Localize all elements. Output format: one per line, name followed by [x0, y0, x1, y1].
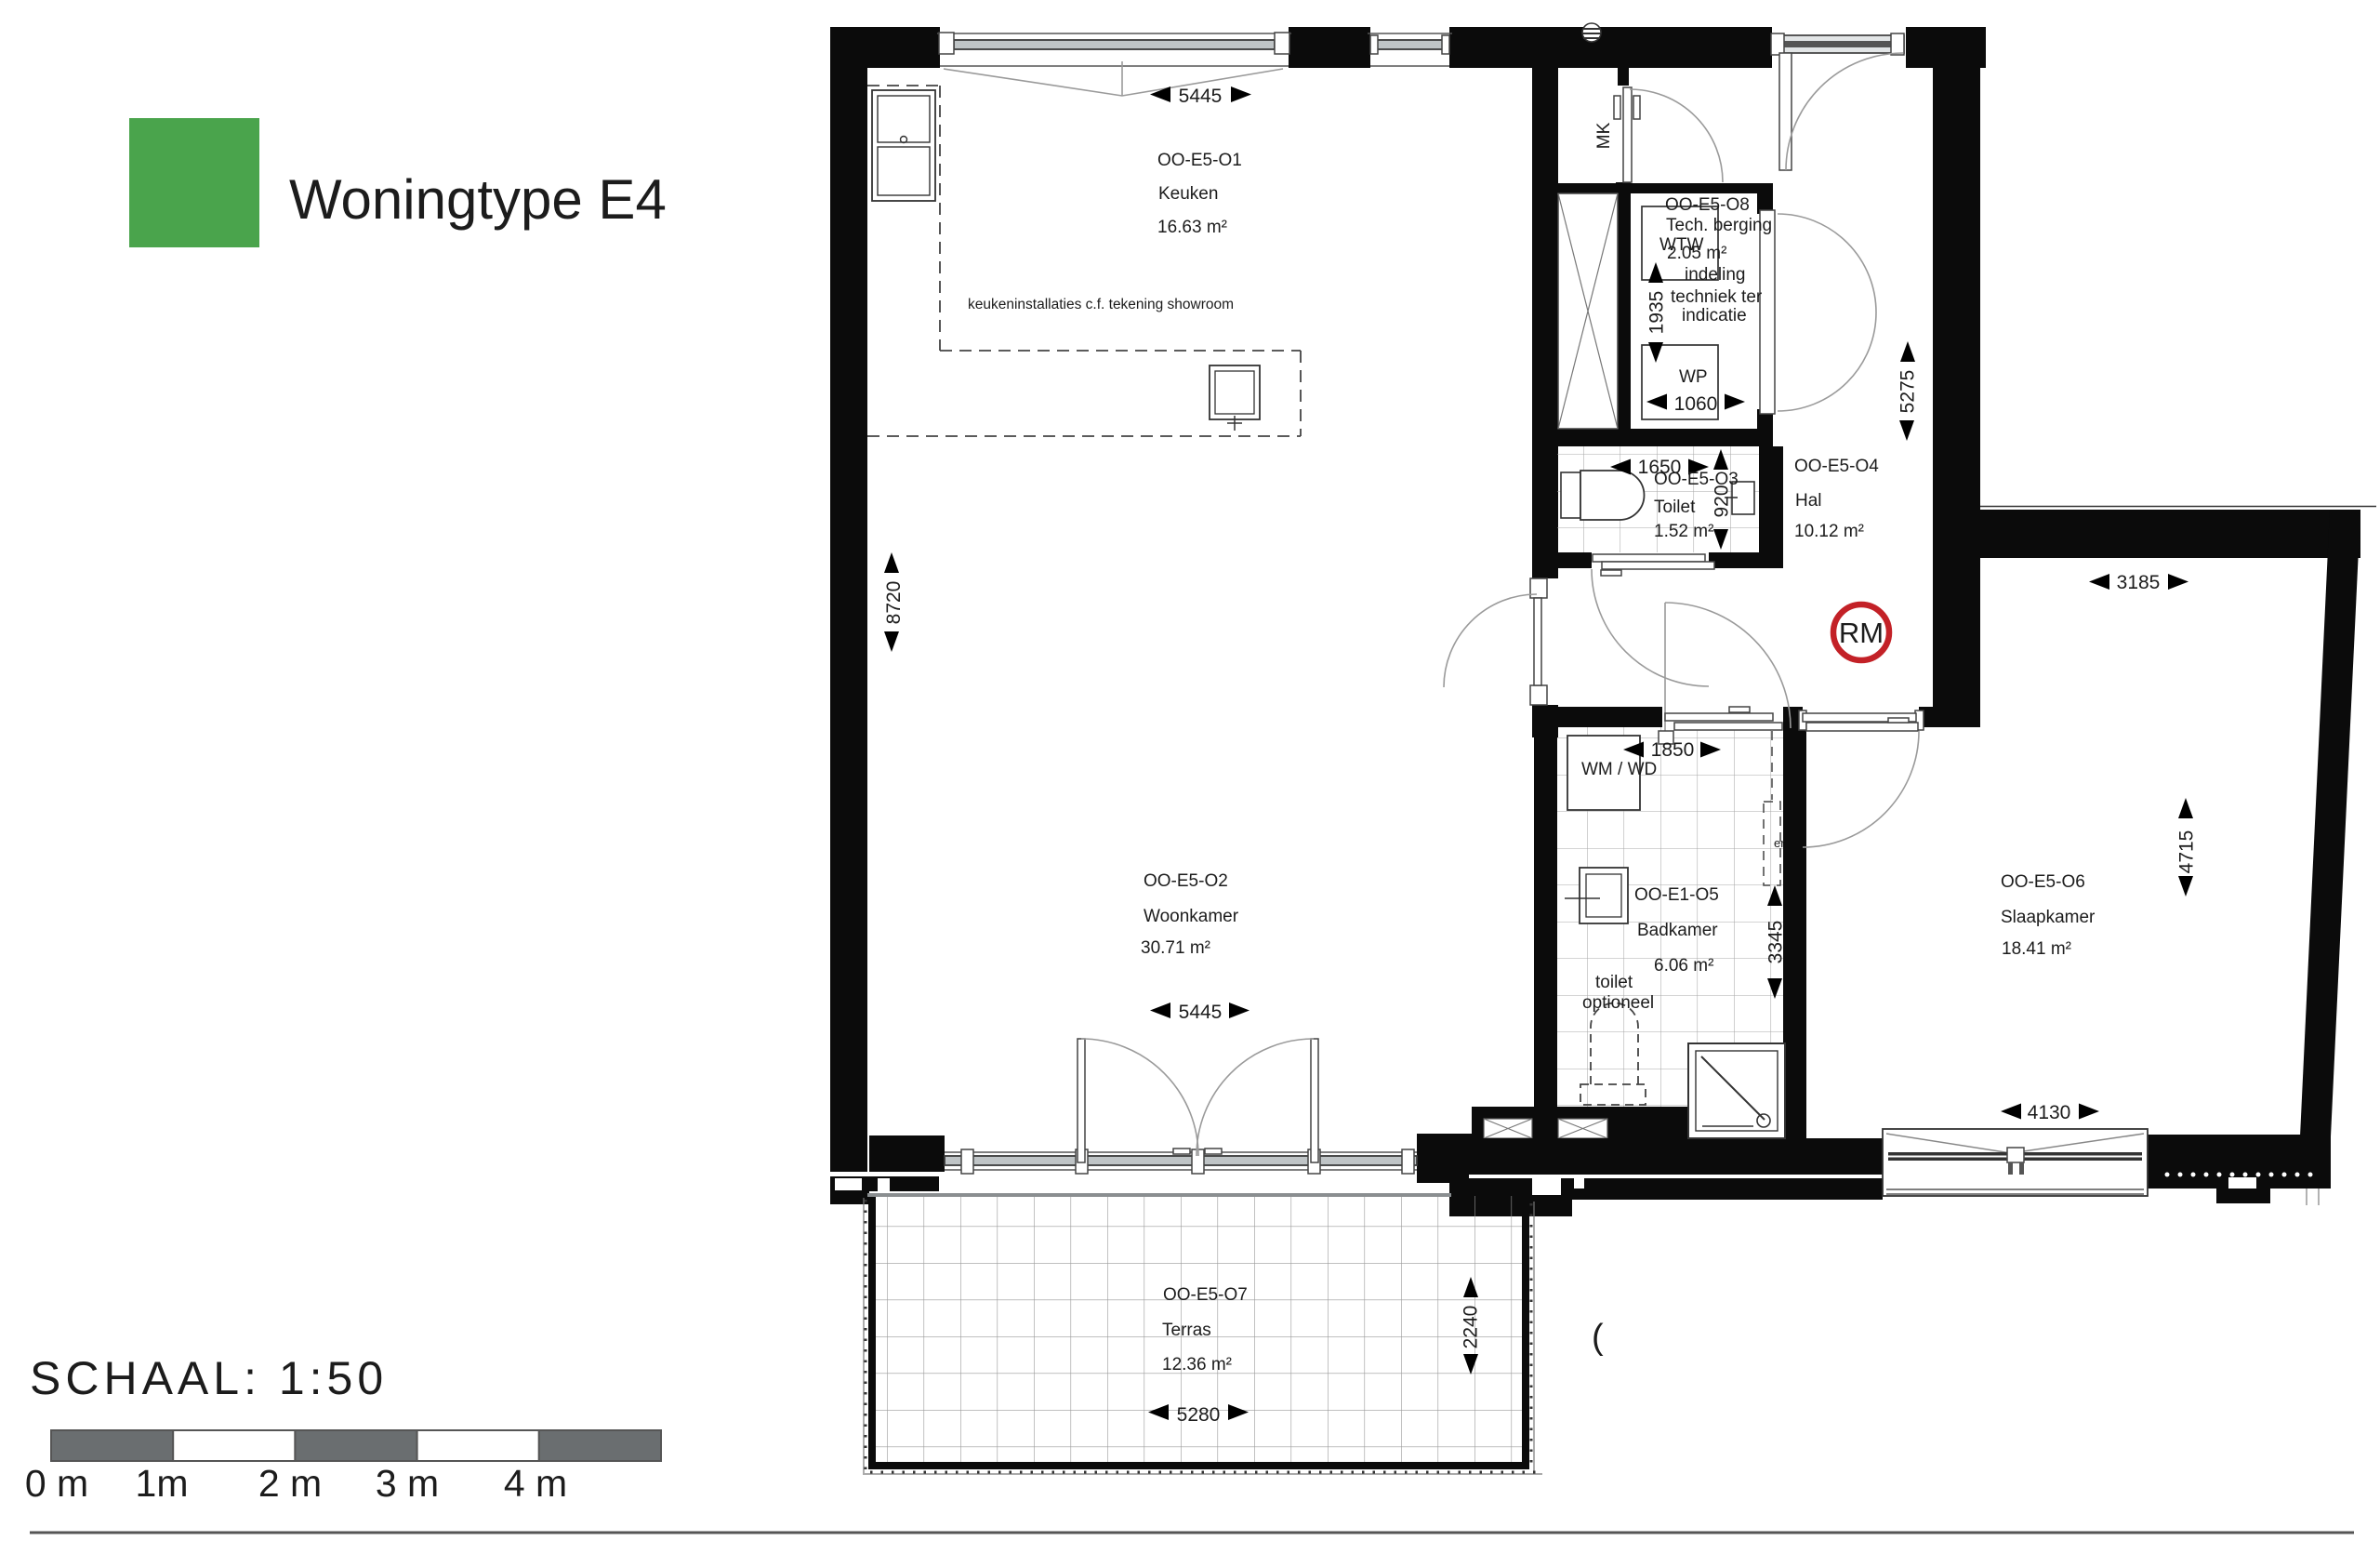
svg-text:0 m: 0 m	[25, 1462, 88, 1505]
svg-text:1935: 1935	[1646, 291, 1668, 335]
svg-text:5275: 5275	[1897, 370, 1919, 414]
svg-text:Hal: Hal	[1795, 491, 1822, 511]
svg-text:er: er	[1774, 836, 1785, 850]
svg-text:OO-E5-O8: OO-E5-O8	[1665, 195, 1750, 215]
svg-text:indeling: indeling	[1685, 265, 1746, 285]
svg-text:MK: MK	[1594, 122, 1614, 149]
svg-text:3345: 3345	[1765, 921, 1787, 964]
svg-text:Badkamer: Badkamer	[1637, 921, 1718, 940]
svg-text:OO-E1-O5: OO-E1-O5	[1634, 885, 1719, 905]
svg-text:optioneel: optioneel	[1582, 993, 1654, 1013]
svg-text:1850: 1850	[1651, 739, 1695, 761]
svg-text:Woningtype E4: Woningtype E4	[289, 168, 667, 231]
svg-text:Toilet: Toilet	[1654, 498, 1696, 517]
svg-text:30.71 m²: 30.71 m²	[1141, 938, 1210, 958]
svg-text:12.36 m²: 12.36 m²	[1162, 1355, 1232, 1374]
svg-text:5445: 5445	[1179, 1002, 1223, 1023]
svg-text:WP: WP	[1679, 367, 1708, 387]
svg-text:8720: 8720	[883, 581, 905, 625]
svg-text:keukeninstallaties c.f. tekeni: keukeninstallaties c.f. tekening showroo…	[968, 297, 1234, 312]
svg-text:OO-E5-O7: OO-E5-O7	[1163, 1285, 1248, 1305]
svg-text:4130: 4130	[2028, 1102, 2071, 1123]
svg-text:920: 920	[1712, 485, 1733, 517]
svg-text:Woonkamer: Woonkamer	[1144, 907, 1239, 926]
svg-text:indicatie: indicatie	[1682, 306, 1747, 325]
svg-text:(: (	[1592, 1318, 1604, 1357]
svg-text:16.63 m²: 16.63 m²	[1157, 218, 1227, 237]
svg-text:Keuken: Keuken	[1158, 184, 1218, 204]
svg-text:OO-E5-O4: OO-E5-O4	[1794, 457, 1879, 476]
svg-text:4715: 4715	[2176, 830, 2198, 874]
svg-text:Slaapkamer: Slaapkamer	[2001, 908, 2096, 927]
svg-text:1m: 1m	[136, 1462, 189, 1505]
svg-text:OO-E5-O6: OO-E5-O6	[2001, 872, 2085, 892]
svg-text:Tech. berging: Tech. berging	[1666, 216, 1772, 235]
svg-text:toilet: toilet	[1595, 973, 1633, 992]
svg-text:4 m: 4 m	[504, 1462, 567, 1505]
svg-text:SCHAAL: 1:50: SCHAAL: 1:50	[30, 1352, 388, 1404]
svg-text:3 m: 3 m	[376, 1462, 439, 1505]
svg-text:1.52 m²: 1.52 m²	[1654, 522, 1713, 541]
svg-text:18.41 m²: 18.41 m²	[2002, 939, 2071, 959]
svg-text:RM: RM	[1839, 617, 1884, 649]
svg-text:10.12 m²: 10.12 m²	[1794, 522, 1864, 541]
svg-text:OO-E5-O1: OO-E5-O1	[1157, 151, 1242, 170]
svg-text:Terras: Terras	[1162, 1321, 1211, 1340]
svg-text:techniek ter: techniek ter	[1671, 287, 1763, 307]
svg-text:3185: 3185	[2117, 572, 2161, 593]
svg-text:WM / WD: WM / WD	[1581, 760, 1657, 779]
svg-text:2 m: 2 m	[258, 1462, 322, 1505]
svg-text:2.05 m²: 2.05 m²	[1667, 244, 1726, 263]
svg-text:OO-E5-O2: OO-E5-O2	[1144, 871, 1228, 891]
svg-text:2240: 2240	[1461, 1306, 1482, 1349]
svg-text:6.06 m²: 6.06 m²	[1654, 956, 1713, 976]
svg-text:1060: 1060	[1674, 393, 1718, 415]
svg-text:5280: 5280	[1177, 1404, 1221, 1426]
svg-text:5445: 5445	[1179, 86, 1223, 107]
